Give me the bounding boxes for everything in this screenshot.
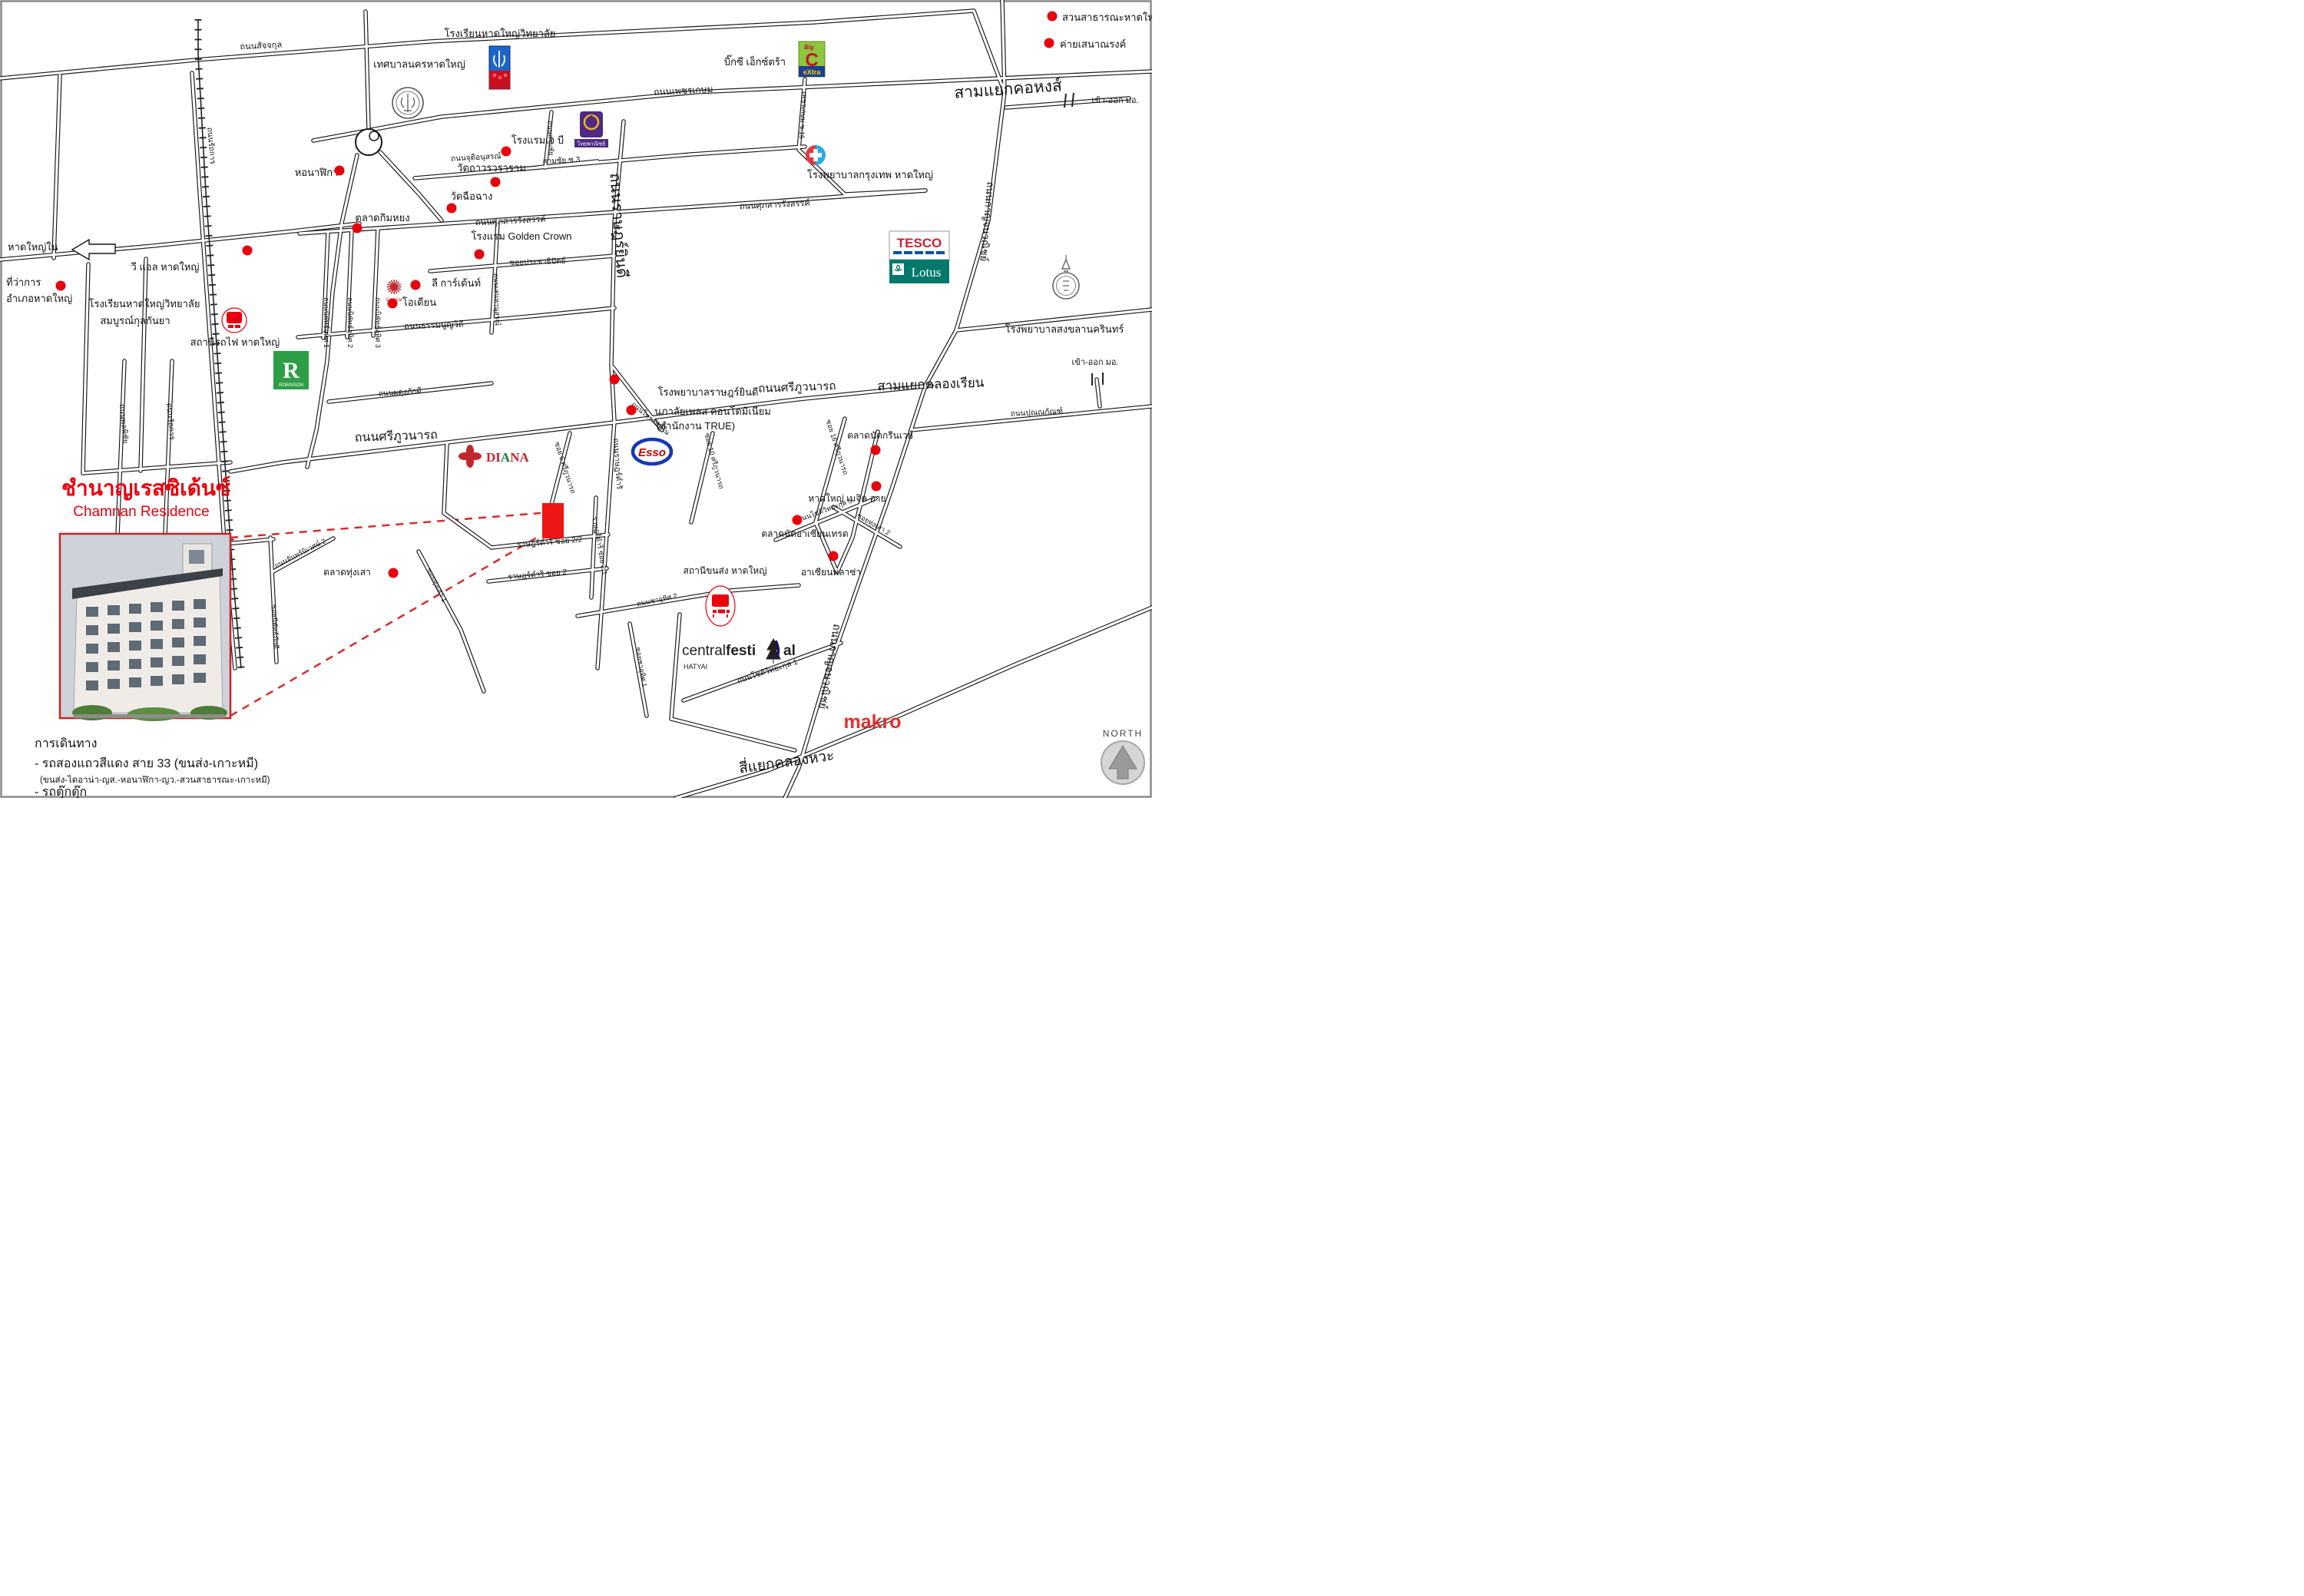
directions-line-1: - รถสองแถวสีแดง สาย 33 (ขนส่ง-เกาะหมี) bbox=[35, 757, 258, 770]
poi-dot bbox=[1044, 38, 1054, 48]
roundabout-icon bbox=[356, 129, 382, 155]
place-label: สถานีขนส่ง หาดใหญ่ bbox=[684, 565, 767, 576]
makro-logo: makro bbox=[843, 711, 901, 733]
place-label: วี แอล หาดใหญ่ bbox=[131, 261, 200, 273]
road-name-label: ซอยประชาธิปัตย์ bbox=[509, 257, 565, 268]
chamnan-residence-photo bbox=[60, 534, 230, 721]
poi-dot bbox=[353, 224, 362, 233]
place-label: ค่ายเสนาณรงค์ bbox=[1060, 38, 1126, 50]
cf-city-text: HATYAI bbox=[684, 663, 707, 671]
bigc-extra-text: eXtra bbox=[803, 68, 822, 76]
diana-di-text: DI bbox=[486, 450, 501, 465]
svg-text:✺: ✺ bbox=[386, 276, 402, 299]
place-label: โรงพยาบาลราษฎร์ยินดี bbox=[658, 386, 759, 398]
place-label: เทศบาลนครหาดใหญ่ bbox=[373, 58, 465, 70]
place-label: โรงพยาบาลกรุงเทพ หาดใหญ่ bbox=[807, 169, 933, 181]
poi-dot bbox=[447, 204, 457, 214]
page-title-thai: ชำนาญเรสซิเด้นซ์ bbox=[61, 476, 230, 501]
place-label: บิ๊กซี เอ็กซ์ตร้า bbox=[724, 55, 786, 68]
place-label: เข้า-ออก มอ. bbox=[1092, 96, 1139, 105]
poi-dot bbox=[829, 551, 839, 561]
svg-text:centralfesti: centralfesti bbox=[682, 643, 756, 659]
esso-logo: Esso bbox=[633, 439, 671, 464]
place-label: สมบูรณ์กุลกันยา bbox=[100, 315, 170, 327]
bigc-extra-logo: Big C eXtra bbox=[799, 41, 825, 77]
scb-caption-text: ไทยพาณิชย์ bbox=[577, 141, 605, 147]
directions-line-2: (ขนส่ง-ไดอาน่า-ญส.-หอนาฬิกา-ญว.-สวนสาธาร… bbox=[40, 775, 270, 785]
map-title: ชำนาญเรสซิเด้นซ์ Chamnan Residence bbox=[61, 476, 230, 520]
train-station-icon bbox=[222, 308, 247, 333]
road-name-label: ถนนธรรมนูญวิถี bbox=[404, 320, 464, 332]
lotus-text: Lotus bbox=[912, 265, 942, 280]
poi-dot bbox=[502, 147, 511, 157]
poi-dot bbox=[1048, 12, 1058, 22]
place-label: ลี การ์เด้นท์ bbox=[432, 277, 481, 289]
poi-dot bbox=[627, 406, 637, 416]
cf-al-text: al bbox=[783, 643, 796, 659]
place-label: นภาลัยเพลส คอนโดมิเนียม bbox=[654, 406, 771, 417]
place-label: โรงพยาบาลสงขลานครินทร์ bbox=[1005, 323, 1124, 335]
place-label: ตลาดนัดกรีนเวย์ bbox=[847, 430, 912, 441]
road-name-label: ถนนนิพัทธ์อุทิศ 1 bbox=[322, 297, 331, 348]
poi-dot bbox=[610, 375, 620, 385]
cf-central-text: central bbox=[682, 643, 726, 659]
place-label: หาดใหญ่ เมจิค อาย bbox=[808, 493, 886, 504]
tesco-text: TESCO bbox=[897, 236, 942, 250]
north-label: NORTH bbox=[1103, 728, 1143, 739]
place-label: (สำนักงาน TRUE) bbox=[657, 420, 735, 432]
diana-na-text: NA bbox=[510, 450, 529, 465]
place-label: สถานีรถไฟ หาดใหญ่ bbox=[190, 336, 280, 348]
place-label: โอเดียน bbox=[402, 296, 436, 308]
poi-dot bbox=[793, 515, 803, 525]
poi-dot bbox=[389, 568, 399, 578]
place-label: โรงแรม Golden Crown bbox=[472, 230, 572, 242]
place-label: ตลาดนัดอาเซียนเทรด bbox=[761, 528, 848, 539]
robinson-logo: R ROBINSON bbox=[273, 351, 309, 389]
poi-dot bbox=[335, 166, 345, 176]
place-label: สวนสาธารณะหาดใหญ่ bbox=[1062, 12, 1152, 23]
place-label: โรงเรียนหาดใหญ่วิทยาลัย bbox=[89, 298, 200, 310]
poi-dot bbox=[475, 250, 485, 260]
place-label: อำเภอหาดใหญ่ bbox=[6, 293, 72, 304]
poi-dot bbox=[388, 299, 398, 309]
road-name-label: ถนนศรีภูวนารถ bbox=[758, 379, 836, 396]
esso-text: Esso bbox=[638, 446, 666, 459]
tesco-lotus-logo: TESCO Lotus bbox=[889, 231, 949, 283]
poi-dot bbox=[411, 280, 421, 290]
north-compass: NORTH bbox=[1101, 728, 1144, 784]
map-page: Big C eXtra ไทยพาณิชย์ TESCO Lotus bbox=[0, 0, 1152, 798]
place-label: ตลาดกิมหยง bbox=[355, 212, 409, 224]
place-label: อาเซียนพลาซ่า bbox=[801, 567, 861, 578]
road-name-label: ถนนนิพัทธ์อุทิศ 3 bbox=[373, 297, 382, 348]
page-title-english: Chamnan Residence bbox=[73, 504, 209, 520]
robinson-text: ROBINSON bbox=[279, 383, 303, 388]
poi-dot bbox=[243, 246, 253, 256]
map-canvas: Big C eXtra ไทยพาณิชย์ TESCO Lotus bbox=[0, 0, 1152, 798]
diana-a-text: A bbox=[501, 450, 511, 465]
place-label: โรงแรมเจ บี bbox=[511, 134, 564, 146]
place-label: โรงเรียนหาดใหญ่วิทยาลัย bbox=[445, 28, 556, 39]
place-label: หอนาฬิกา bbox=[295, 167, 339, 178]
poi-dot bbox=[872, 482, 882, 492]
place-label: หาดใหญ่ใน bbox=[8, 241, 58, 253]
cf-festi-text: festi bbox=[726, 643, 756, 659]
bangkok-hospital-logo bbox=[806, 145, 826, 165]
svg-text:DIANA: DIANA bbox=[486, 450, 529, 465]
robinson-r-text: R bbox=[283, 358, 300, 383]
bus-terminal-icon bbox=[706, 586, 735, 626]
poi-dot bbox=[56, 281, 66, 291]
place-label: ที่ว่าการ bbox=[6, 276, 41, 288]
central-department-store-logo: ✺ Central bbox=[386, 276, 402, 303]
place-label: เข้า-ออก มอ. bbox=[1072, 358, 1119, 367]
poi-dot bbox=[491, 177, 501, 187]
poi-dot bbox=[871, 445, 881, 455]
chamnan-residence-map-marker bbox=[542, 503, 564, 538]
directions-line-3: - รถตุ๊กตุ๊ก bbox=[35, 784, 87, 798]
hatyaiwittayalai-school-logo bbox=[489, 46, 510, 89]
place-label: ตลาดทุ่งเสา bbox=[323, 567, 371, 578]
place-label: วัดถาวรวราราม bbox=[457, 162, 526, 174]
road-name-label: ถนนนิพัทธ์อุทิศ 2 bbox=[346, 297, 355, 348]
place-label: วัดฉือฉาง bbox=[451, 190, 493, 202]
directions-heading: การเดินทาง bbox=[35, 737, 97, 750]
